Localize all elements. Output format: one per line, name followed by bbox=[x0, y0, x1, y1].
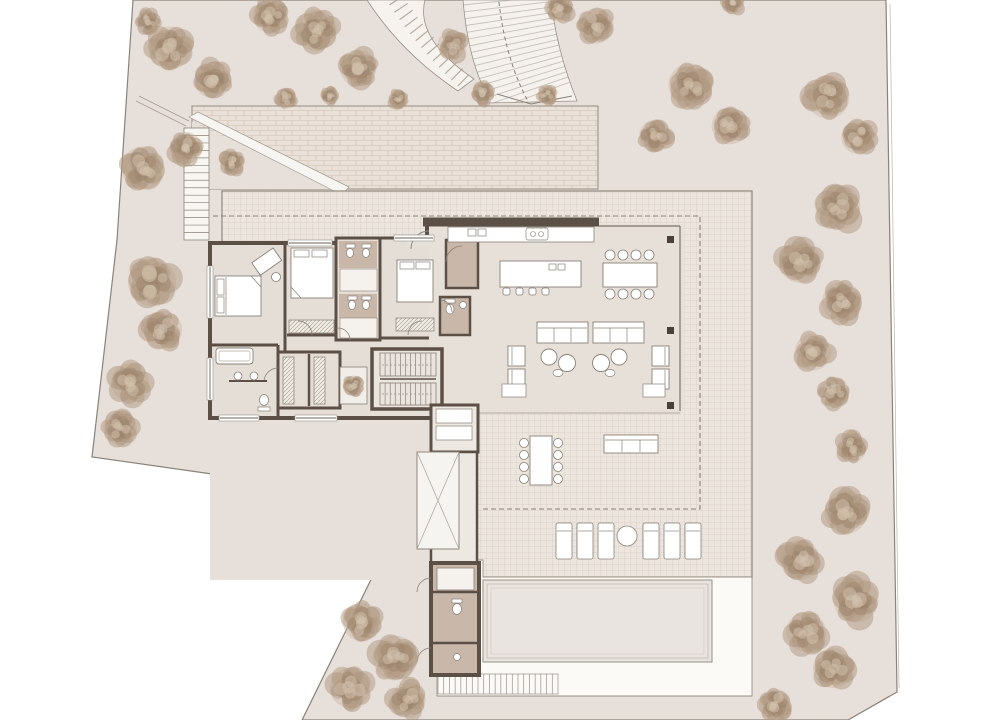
dining-chair bbox=[605, 289, 615, 299]
island-sink bbox=[558, 264, 565, 270]
toilet bbox=[349, 301, 356, 310]
shower bbox=[340, 269, 377, 291]
stair-treads bbox=[380, 353, 436, 376]
outdoor-chair bbox=[520, 451, 529, 460]
column bbox=[667, 236, 674, 243]
toilet bbox=[453, 604, 462, 615]
outdoor-sofa bbox=[604, 435, 658, 453]
side-table bbox=[553, 370, 563, 377]
toilet-tank bbox=[452, 599, 462, 603]
toilet-tank bbox=[346, 244, 355, 248]
armchair bbox=[652, 346, 669, 366]
sink bbox=[250, 372, 258, 380]
sink bbox=[234, 372, 242, 380]
sink bbox=[460, 302, 467, 309]
column bbox=[667, 402, 674, 409]
sofa bbox=[537, 322, 588, 343]
outdoor-chair bbox=[554, 475, 563, 484]
outdoor-dining-table bbox=[530, 436, 552, 485]
side-table bbox=[605, 370, 615, 377]
sun-lounger bbox=[664, 523, 680, 559]
wardrobe bbox=[283, 357, 294, 404]
dining-chair bbox=[631, 250, 641, 260]
plan-layers bbox=[92, 0, 899, 720]
toilet bbox=[363, 249, 370, 258]
outdoor-chair bbox=[554, 463, 563, 472]
tree bbox=[219, 149, 245, 177]
shower bbox=[340, 318, 377, 338]
bar-stool bbox=[516, 288, 523, 295]
bar-stool bbox=[503, 288, 510, 295]
island-sink bbox=[549, 264, 556, 270]
dining-chair bbox=[618, 289, 628, 299]
console-table bbox=[502, 384, 526, 397]
sofa bbox=[593, 322, 644, 343]
utility-cabinet bbox=[436, 409, 472, 423]
dining-chair bbox=[605, 250, 615, 260]
dining-chair bbox=[631, 289, 641, 299]
column bbox=[667, 327, 674, 334]
bathtub bbox=[216, 348, 253, 364]
toilet bbox=[363, 301, 370, 310]
dining-chair bbox=[618, 250, 628, 260]
yard-fill bbox=[210, 418, 433, 580]
kitchen-island bbox=[500, 261, 581, 287]
armchair bbox=[508, 346, 525, 366]
cooktop bbox=[526, 228, 548, 240]
floor-plan-page bbox=[0, 0, 989, 720]
toilet-tank bbox=[258, 407, 270, 411]
bar-stool bbox=[529, 288, 536, 295]
pillow bbox=[416, 262, 430, 269]
pool-bath-shower bbox=[437, 568, 474, 590]
outdoor-chair bbox=[520, 475, 529, 484]
pillow bbox=[294, 250, 309, 257]
pantry-floor bbox=[446, 240, 478, 288]
utility-cabinet bbox=[436, 426, 472, 440]
sun-lounger bbox=[556, 523, 572, 559]
lounger-side-table bbox=[617, 526, 637, 546]
coffee-table bbox=[559, 355, 576, 372]
kitchen-sink bbox=[478, 229, 486, 236]
sun-lounger bbox=[577, 523, 593, 559]
toilet-tank bbox=[445, 299, 455, 303]
sun-lounger bbox=[685, 523, 701, 559]
toilet bbox=[347, 249, 354, 258]
outdoor-chair bbox=[554, 451, 563, 460]
dining-chair bbox=[644, 250, 654, 260]
layer-pool_area bbox=[437, 560, 752, 696]
toilet bbox=[260, 395, 269, 406]
pillow bbox=[217, 279, 224, 295]
dining-chair bbox=[644, 289, 654, 299]
outdoor-chair bbox=[554, 439, 563, 448]
kitchen-sink bbox=[468, 229, 476, 236]
toilet-tank bbox=[348, 296, 357, 300]
wardrobe bbox=[396, 318, 434, 331]
console-table bbox=[643, 384, 665, 397]
outdoor-chair bbox=[520, 463, 529, 472]
pillow bbox=[312, 250, 327, 257]
bar-stool bbox=[542, 288, 549, 295]
toilet-tank bbox=[362, 296, 371, 300]
toilet-tank bbox=[362, 244, 371, 248]
site-plan-svg bbox=[0, 0, 989, 720]
sun-lounger bbox=[643, 523, 659, 559]
coffee-table bbox=[611, 349, 627, 365]
pillow bbox=[217, 297, 224, 313]
coffee-table bbox=[593, 355, 610, 372]
pool bbox=[483, 580, 712, 662]
coffee-table bbox=[541, 349, 557, 365]
dining-table bbox=[603, 263, 657, 287]
pillow bbox=[400, 262, 414, 269]
outdoor-chair bbox=[520, 439, 529, 448]
desk-chair bbox=[272, 273, 281, 282]
sink bbox=[454, 654, 461, 661]
wardrobe bbox=[314, 357, 325, 404]
sun-lounger bbox=[598, 523, 614, 559]
